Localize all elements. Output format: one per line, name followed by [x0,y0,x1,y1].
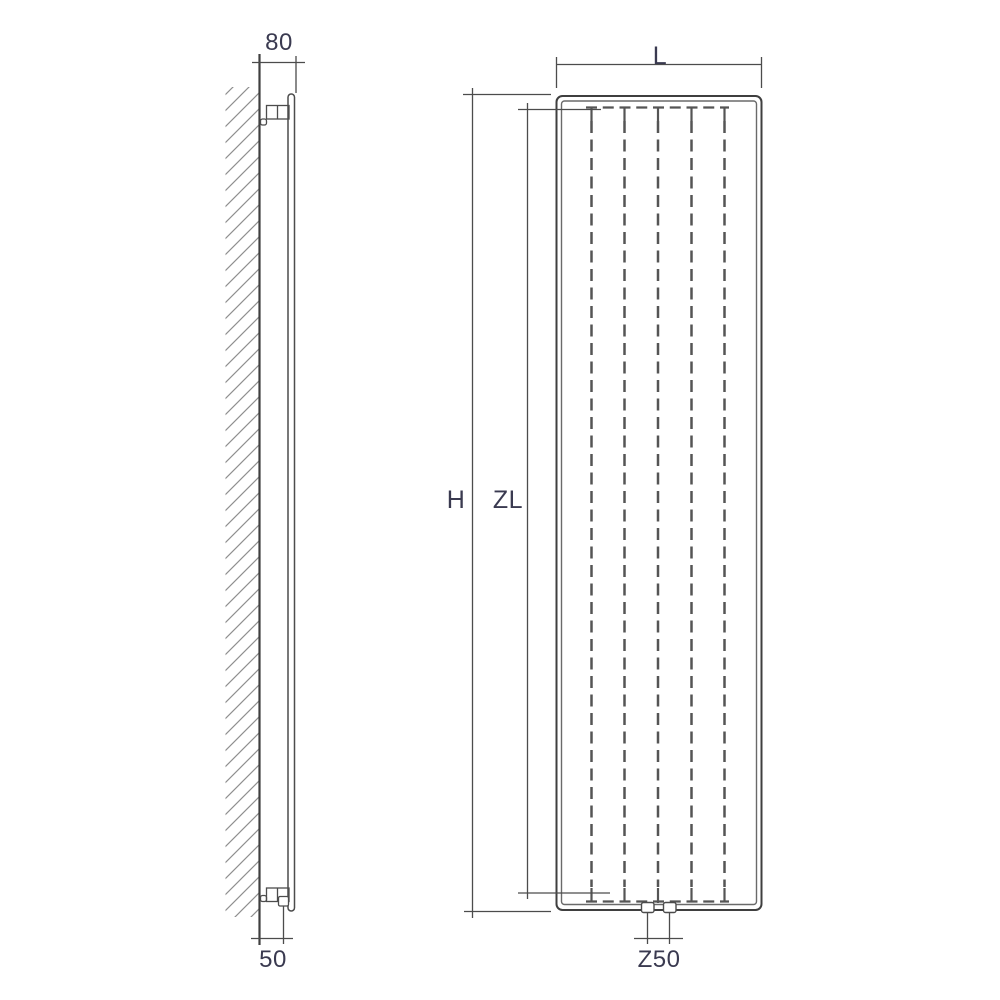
connection-valve-right [664,903,677,913]
dim-label-Z50: Z50 [638,948,681,972]
internal-channels [592,121,725,887]
dim-label-ZL: ZL [493,488,523,513]
top-wall-bracket [261,106,290,126]
dim-label-50: 50 [259,948,287,972]
bottom-header [586,888,729,903]
wall-hatch [226,87,260,917]
bottom-wall-bracket [261,888,290,906]
connection-valve-left [642,903,655,913]
dim-ZL [518,103,610,899]
dim-label-80: 80 [265,31,293,55]
dim-label-L: L [653,44,667,69]
radiator-side-panel [288,94,295,911]
radiator-technical-drawing: 80 50 L H ZL Z50 [0,0,1000,1000]
connection-stub [279,897,289,907]
dim-label-H: H [447,488,466,513]
front-view [557,96,762,913]
side-view [226,54,295,945]
top-header [586,108,729,122]
dim-Z50 [634,912,683,944]
